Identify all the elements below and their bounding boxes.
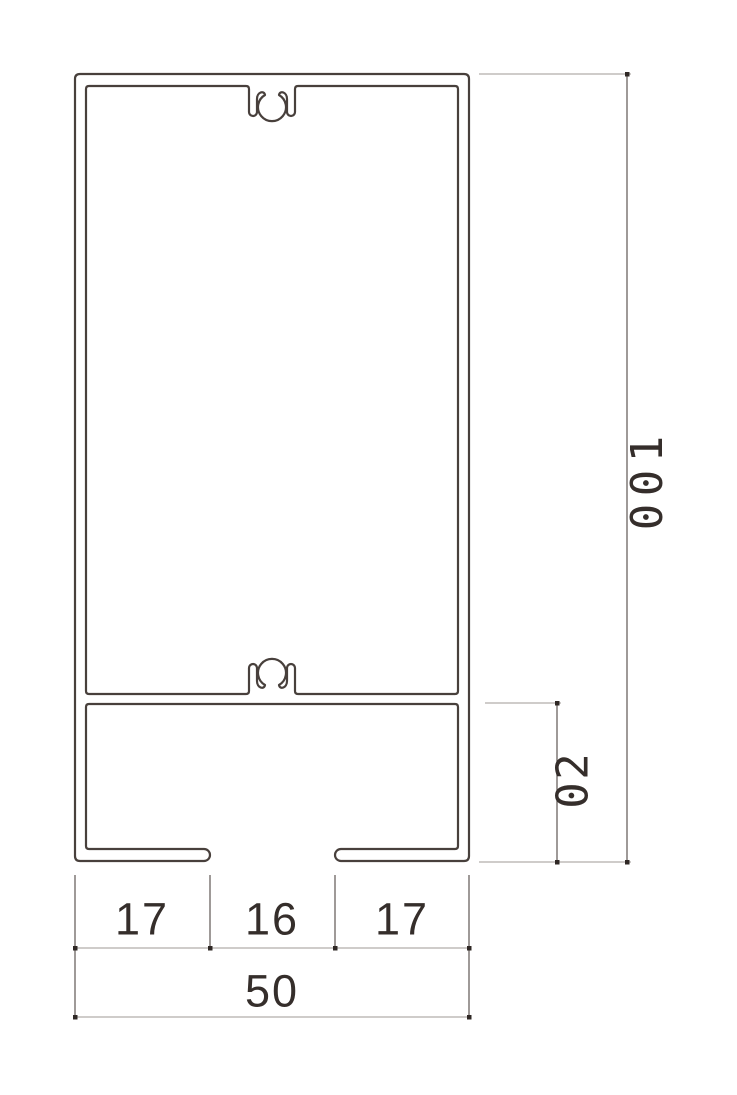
- dimension-value-bottom-left-17: 17: [115, 897, 169, 942]
- dimension-lines-vertical: [557, 74, 627, 862]
- dimension-end-markers: [73, 72, 630, 1020]
- drawing-sheet: 17 16 17 50 100 20: [0, 0, 737, 1095]
- dimension-value-bottom-right-17: 17: [375, 897, 429, 942]
- dimension-value-overall-width-50: 50: [245, 969, 299, 1014]
- extension-lines-horizontal: [479, 74, 631, 862]
- dimension-value-bottom-slot-16: 16: [245, 897, 299, 942]
- profile-cross-section: [75, 74, 469, 861]
- profile-outer-and-lower-chamber: [75, 74, 469, 861]
- profile-upper-chamber-with-screw-ports: [86, 86, 458, 694]
- dimension-value-lower-height-20: 20: [553, 752, 593, 810]
- drawing-canvas: [0, 0, 737, 1095]
- dimension-value-overall-height-100: 100: [628, 432, 668, 534]
